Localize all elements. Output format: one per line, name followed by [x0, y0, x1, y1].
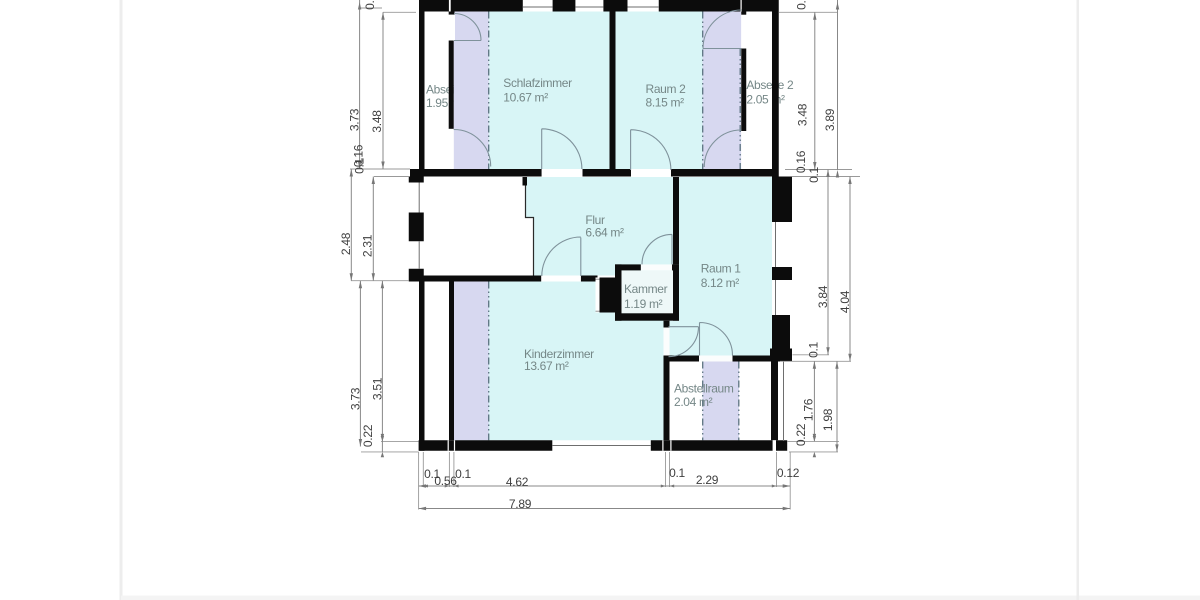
svg-text:4.04: 4.04 [838, 290, 852, 313]
svg-text:3.73: 3.73 [349, 387, 363, 410]
svg-text:Flur: Flur [585, 213, 605, 227]
svg-text:0.1: 0.1 [353, 157, 367, 173]
svg-text:3.84: 3.84 [816, 285, 830, 308]
svg-text:Raum 1: Raum 1 [701, 262, 742, 276]
svg-text:2.48: 2.48 [339, 232, 353, 255]
svg-text:3.48: 3.48 [796, 103, 810, 126]
svg-text:3.89: 3.89 [823, 108, 837, 131]
svg-text:0.1: 0.1 [363, 0, 377, 10]
svg-text:13.67 m²: 13.67 m² [524, 359, 569, 373]
svg-text:0.12: 0.12 [777, 466, 800, 480]
svg-text:4.62: 4.62 [506, 475, 529, 489]
svg-text:2.05 m²: 2.05 m² [746, 93, 785, 107]
svg-text:0.1: 0.1 [806, 341, 820, 357]
svg-text:0.1: 0.1 [795, 0, 809, 10]
svg-text:6.64 m²: 6.64 m² [585, 226, 624, 240]
svg-text:0.22: 0.22 [794, 423, 808, 446]
svg-text:0.1: 0.1 [455, 467, 471, 481]
svg-text:10.67 m²: 10.67 m² [503, 90, 548, 104]
svg-text:1.76: 1.76 [802, 398, 816, 421]
svg-text:0.1: 0.1 [669, 466, 685, 480]
svg-text:3.73: 3.73 [348, 108, 362, 131]
svg-text:0.1: 0.1 [807, 166, 821, 182]
svg-text:1.19 m²: 1.19 m² [624, 297, 663, 311]
svg-text:2.04 m²: 2.04 m² [674, 395, 713, 409]
svg-text:2.31: 2.31 [361, 234, 375, 257]
svg-text:Raum 2: Raum 2 [646, 82, 687, 96]
svg-text:Schlafzimmer: Schlafzimmer [503, 76, 572, 90]
svg-text:Abseite 2: Abseite 2 [746, 78, 794, 92]
svg-text:0.22: 0.22 [361, 424, 375, 447]
svg-text:3.48: 3.48 [370, 110, 384, 133]
svg-text:2.29: 2.29 [696, 473, 719, 487]
svg-text:Abstellraum: Abstellraum [674, 381, 734, 395]
svg-text:1.98: 1.98 [821, 408, 835, 431]
svg-text:0.56: 0.56 [434, 474, 457, 488]
svg-text:Kammer: Kammer [624, 282, 668, 296]
svg-text:7.89: 7.89 [509, 497, 532, 511]
svg-text:8.15 m²: 8.15 m² [646, 96, 685, 110]
svg-text:3.51: 3.51 [371, 377, 385, 400]
svg-text:8.12 m²: 8.12 m² [701, 276, 740, 290]
svg-text:0.16: 0.16 [794, 150, 808, 173]
